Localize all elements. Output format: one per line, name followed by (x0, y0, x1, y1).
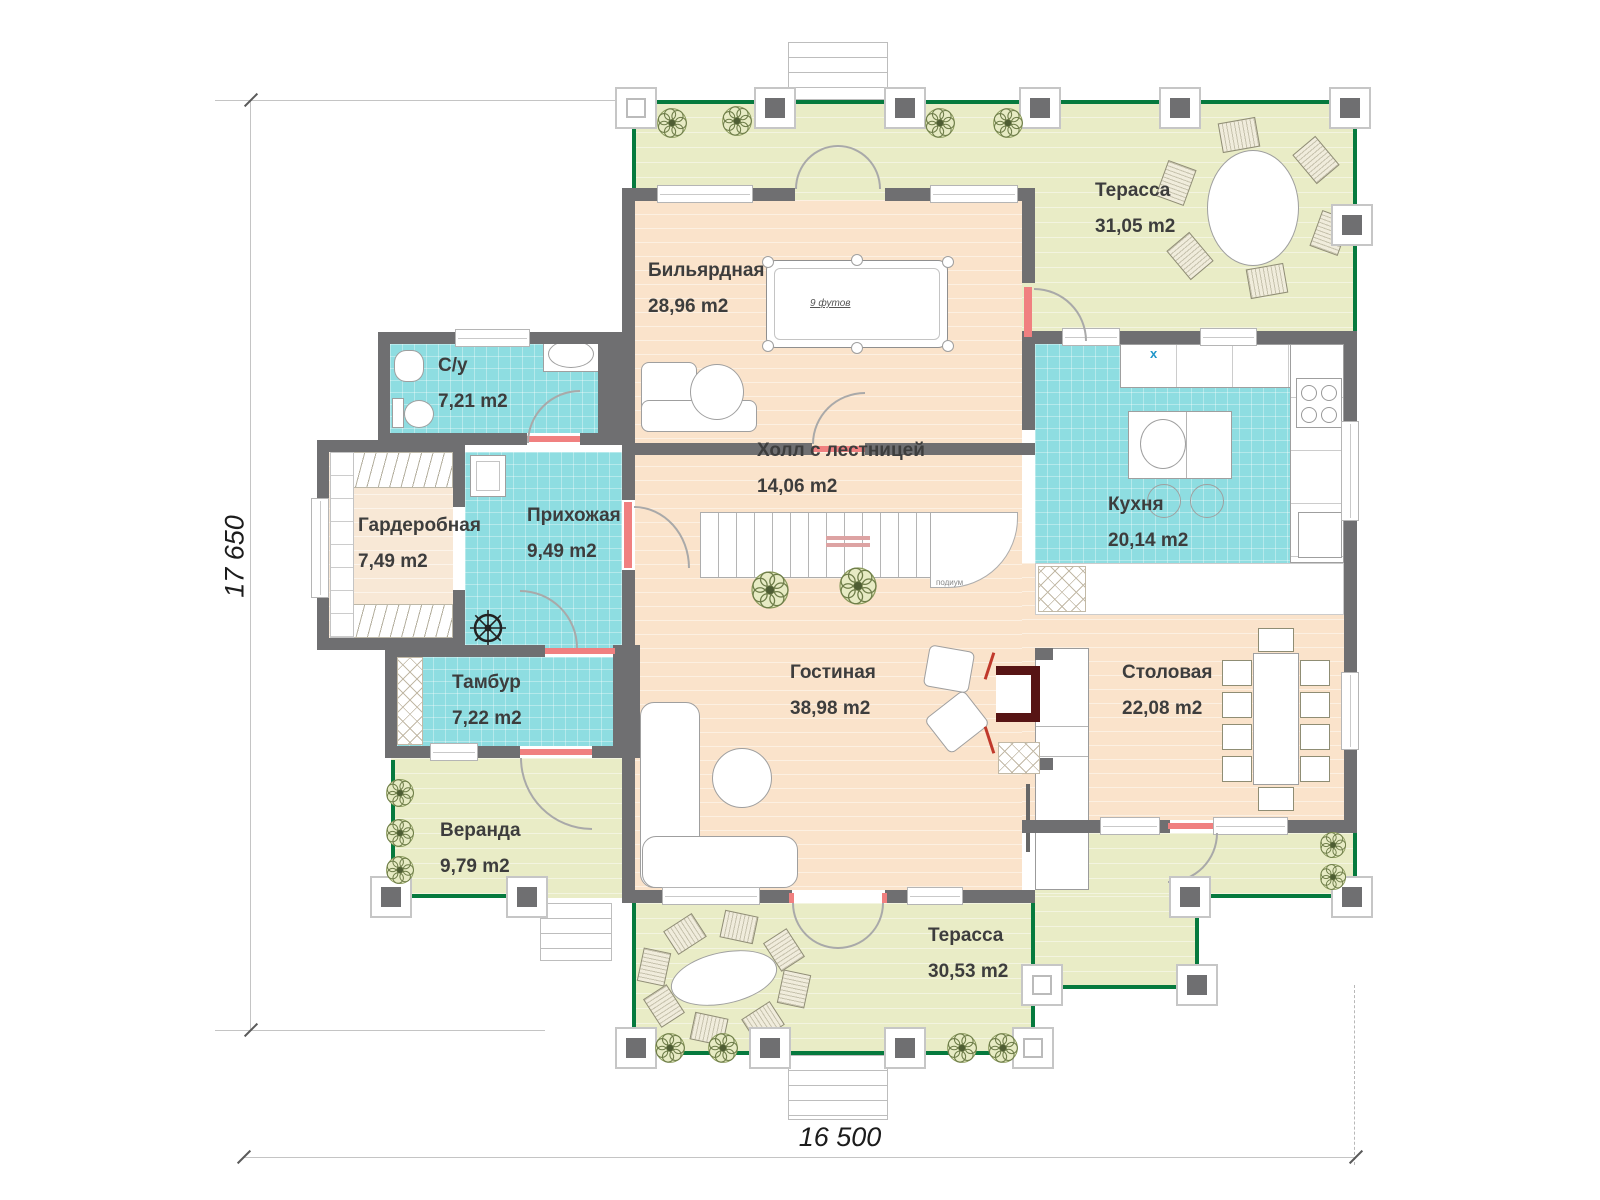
pillar (754, 87, 796, 129)
room-area: 7,21 m2 (438, 391, 508, 413)
chair (1300, 756, 1330, 782)
room-area: 14,06 m2 (757, 476, 925, 498)
wall-segment (378, 332, 390, 445)
billiard-table-inner (774, 268, 940, 340)
wall-segment (622, 890, 662, 903)
pillar (1331, 204, 1373, 246)
window (1100, 817, 1160, 835)
table-pocket (942, 340, 954, 352)
counter-hatch (1038, 566, 1086, 612)
dining-table (1253, 653, 1299, 785)
room-area: 31,05 m2 (1095, 216, 1175, 238)
stairs-bottom (788, 1055, 888, 1120)
pillar (1159, 87, 1201, 129)
plant-icon (656, 107, 688, 139)
room-name: Столовая (1122, 662, 1212, 684)
burner-icon (1301, 407, 1317, 423)
pillar-core (1180, 887, 1200, 907)
witness-line-bottom-left (215, 1030, 545, 1031)
wardrobe-rack (330, 452, 354, 638)
stair-note (826, 543, 870, 547)
table-pocket (851, 342, 863, 354)
room-label-hall: Холл с лестницей 14,06 m2 (757, 440, 925, 498)
door-threshold (882, 893, 887, 903)
pillar-core (517, 887, 537, 907)
pillar (884, 1027, 926, 1069)
plant-icon (385, 778, 415, 808)
plant-icon (707, 1032, 739, 1064)
wall-segment (580, 433, 600, 445)
plant-icon (750, 570, 790, 610)
wall-segment (963, 890, 1035, 903)
table-pocket (762, 340, 774, 352)
pillar (884, 87, 926, 129)
room-label-dining: Столовая 22,08 m2 (1122, 662, 1212, 720)
chair (1222, 692, 1252, 718)
wall-segment (530, 332, 600, 344)
pillar-core (1340, 98, 1360, 118)
window (1200, 328, 1257, 346)
column-shelf (1036, 756, 1088, 757)
chair (1300, 724, 1330, 750)
wall-segment (1120, 331, 1200, 344)
wall-segment (598, 332, 634, 445)
wall-segment (885, 890, 907, 903)
table-pocket (942, 256, 954, 268)
wall-segment (453, 590, 465, 650)
terrace-railing (1199, 894, 1352, 898)
billiard-table-label: 9 футов (810, 298, 850, 309)
stove (1296, 378, 1342, 428)
wall-segment (317, 440, 465, 452)
pillar-core (1187, 975, 1207, 995)
terrace-railing (632, 100, 1357, 104)
wall-segment (885, 188, 930, 201)
room-label-terrace-top: Терасса 31,05 m2 (1095, 180, 1175, 238)
wall-segment (1344, 344, 1357, 421)
plant-icon (992, 107, 1024, 139)
room-name: Прихожая (527, 505, 621, 527)
door-threshold (789, 893, 794, 903)
wall-segment (1022, 188, 1035, 283)
dimension-line-bottom (243, 1157, 1355, 1158)
room-label-wardrobe: Гардеробная 7,49 m2 (358, 515, 481, 573)
door-threshold (624, 502, 632, 568)
window (662, 887, 760, 905)
coffee-table (712, 748, 772, 808)
dishwasher (1298, 512, 1342, 558)
pillar (1021, 964, 1063, 1006)
column-cap (1035, 648, 1053, 660)
chair (1222, 660, 1252, 686)
wall-segment (753, 188, 795, 201)
kitchen-sink (1140, 419, 1186, 469)
dimension-height-label: 17 650 (220, 487, 251, 627)
pillar (1329, 87, 1371, 129)
room-area: 9,79 m2 (440, 856, 521, 878)
kitchen-vent-mark: x (1150, 346, 1157, 361)
room-name: Бильярдная (648, 260, 765, 282)
pillar-core (626, 1038, 646, 1058)
pillar (1176, 964, 1218, 1006)
pillar-core (1030, 98, 1050, 118)
chair (1246, 263, 1289, 299)
chair (1300, 692, 1330, 718)
room-label-vestibule: Тамбур 7,22 m2 (452, 672, 522, 730)
window (930, 185, 1018, 203)
bar-stool (1190, 484, 1224, 518)
room-area: 7,49 m2 (358, 551, 481, 573)
pillar-core (760, 1038, 780, 1058)
room-area: 22,08 m2 (1122, 698, 1212, 720)
pillar-core (626, 98, 646, 118)
washing-machine-drum (476, 461, 500, 491)
window (1341, 672, 1359, 750)
terrace-table (1207, 150, 1299, 266)
door-threshold (545, 648, 615, 654)
side-table (690, 364, 744, 420)
burner-icon (1321, 385, 1337, 401)
wall-segment (613, 645, 640, 758)
ship-wheel-icon (468, 608, 508, 648)
toilet-tank (392, 398, 404, 428)
chair (1258, 787, 1294, 811)
wall-segment (317, 440, 329, 498)
witness-line-top (215, 100, 635, 101)
column-shelf (1036, 726, 1088, 727)
window (430, 743, 478, 761)
pillar-core (765, 98, 785, 118)
pillar-core (1032, 975, 1052, 995)
room-label-billiard: Бильярдная 28,96 m2 (648, 260, 765, 318)
room-label-kitchen: Кухня 20,14 m2 (1108, 494, 1188, 552)
window (455, 329, 530, 347)
chair (1258, 628, 1294, 652)
room-area: 9,49 m2 (527, 541, 621, 563)
room-name: Веранда (440, 820, 521, 842)
chair (1300, 660, 1330, 686)
pillar (615, 87, 657, 129)
door-threshold (1168, 823, 1213, 829)
wall-segment (1344, 521, 1357, 672)
witness-line-right-dashed (1354, 985, 1355, 1165)
plant-icon (987, 1032, 1019, 1064)
room-area: 30,53 m2 (928, 961, 1008, 983)
pillar (1019, 87, 1061, 129)
sink-basin (548, 340, 594, 368)
pillar-core (1342, 215, 1362, 235)
wall-segment (760, 890, 792, 903)
pillar-core (895, 98, 915, 118)
room-label-terrace-bottom: Терасса 30,53 m2 (928, 925, 1008, 983)
wall-segment (1257, 331, 1357, 344)
room-area: 20,14 m2 (1108, 530, 1188, 552)
wall-segment (1022, 344, 1035, 430)
wall-segment (385, 645, 397, 758)
plant-icon (946, 1032, 978, 1064)
fireplace-icon (996, 666, 1040, 722)
plant-icon (654, 1032, 686, 1064)
pillar (749, 1027, 791, 1069)
floor-plan: 17 650 16 500 Терасса 31,05 m2 Бильярдна… (0, 0, 1600, 1200)
room-name: Холл с лестницей (757, 440, 925, 462)
plant-icon (1319, 831, 1347, 859)
room-area: 38,98 m2 (790, 698, 876, 720)
stairs-left (540, 903, 612, 961)
pillar (1169, 876, 1211, 918)
window (907, 887, 963, 905)
plant-icon (838, 566, 878, 606)
room-name: Гардеробная (358, 515, 481, 537)
window (311, 498, 329, 598)
dimension-width-label: 16 500 (750, 1122, 930, 1153)
hearth-hatch (998, 742, 1040, 774)
urinal (394, 350, 424, 382)
pillar-core (1023, 1038, 1043, 1058)
pillar-core (1170, 98, 1190, 118)
room-area: 7,22 m2 (452, 708, 522, 730)
pillar-core (381, 887, 401, 907)
table-pocket (851, 254, 863, 266)
plant-icon (721, 105, 753, 137)
room-name: С/у (438, 355, 508, 377)
room-name: Кухня (1108, 494, 1188, 516)
door-threshold (1024, 287, 1032, 337)
room-name: Терасса (928, 925, 1008, 947)
corner-sofa (642, 836, 798, 888)
room-label-entry: Прихожая 9,49 m2 (527, 505, 621, 563)
room-name: Гостиная (790, 662, 876, 684)
room-name: Терасса (1095, 180, 1175, 202)
window (657, 185, 753, 203)
stairs-top (788, 42, 888, 100)
wall-segment (453, 440, 465, 507)
plant-icon (385, 855, 415, 885)
wall-segment (385, 746, 430, 758)
pillar (615, 1027, 657, 1069)
window (1341, 421, 1359, 521)
wall-segment (1022, 820, 1100, 833)
toilet-bowl (404, 400, 434, 428)
tv-panel (1026, 784, 1030, 852)
plant-icon (1319, 863, 1347, 891)
burner-icon (1301, 385, 1317, 401)
chair (1222, 724, 1252, 750)
room-label-living: Гостиная 38,98 m2 (790, 662, 876, 720)
armchair (923, 644, 976, 693)
door-threshold (520, 749, 592, 755)
stair-note (826, 536, 870, 540)
room-label-veranda: Веранда 9,79 m2 (440, 820, 521, 878)
vestibule-closet (397, 657, 423, 745)
wall-segment (478, 746, 520, 758)
stairs-podium-label: подиум (936, 578, 963, 587)
window (1213, 817, 1288, 835)
pillar (506, 876, 548, 918)
chair (1222, 756, 1252, 782)
room-label-bathroom: С/у 7,21 m2 (438, 355, 508, 413)
burner-icon (1321, 407, 1337, 423)
plant-icon (385, 818, 415, 848)
pillar-core (895, 1038, 915, 1058)
room-area: 28,96 m2 (648, 296, 765, 318)
plant-icon (924, 107, 956, 139)
room-name: Тамбур (452, 672, 522, 694)
island-divider (1186, 412, 1187, 478)
